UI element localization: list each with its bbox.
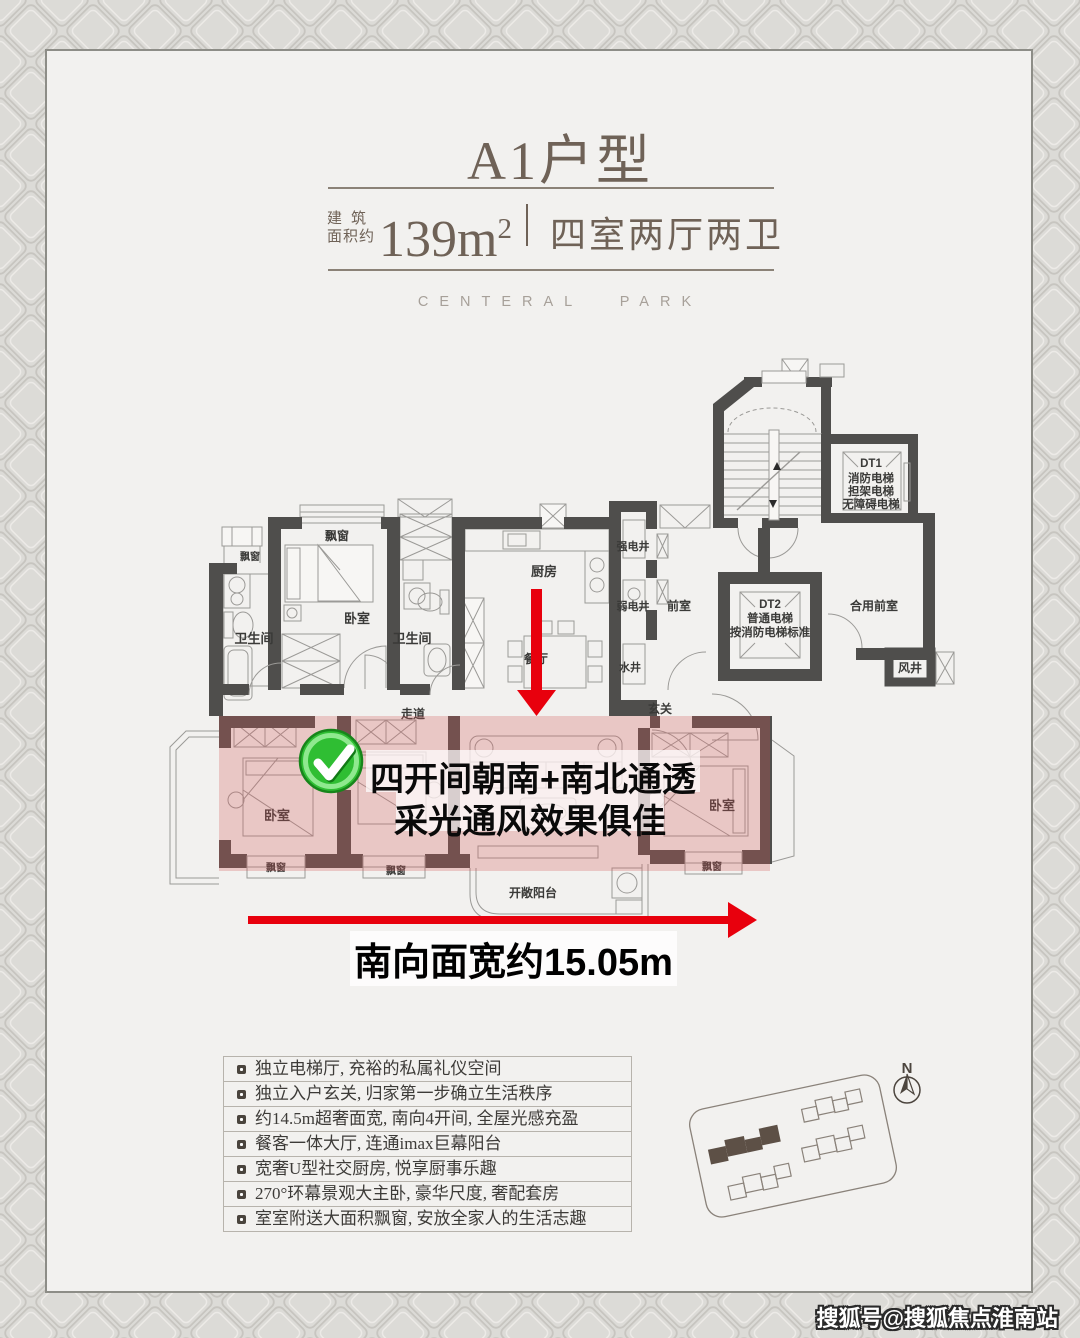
svg-text:消防电梯: 消防电梯 bbox=[848, 471, 894, 485]
svg-text:DT1: DT1 bbox=[860, 458, 882, 470]
svg-text:无障碍电梯: 无障碍电梯 bbox=[841, 497, 900, 511]
svg-text:普通电梯: 普通电梯 bbox=[747, 611, 793, 625]
svg-text:飘窗: 飘窗 bbox=[325, 528, 349, 543]
svg-text:前室: 前室 bbox=[667, 598, 691, 613]
svg-text:飘窗: 飘窗 bbox=[240, 550, 260, 563]
svg-text:卧室: 卧室 bbox=[344, 611, 370, 626]
svg-text:弱电井: 弱电井 bbox=[617, 599, 650, 613]
svg-text:水井: 水井 bbox=[619, 660, 641, 674]
svg-text:担架电梯: 担架电梯 bbox=[848, 484, 894, 498]
svg-text:按消防电梯标准: 按消防电梯标准 bbox=[730, 625, 811, 639]
svg-text:卫生间: 卫生间 bbox=[234, 631, 273, 646]
svg-text:玄关: 玄关 bbox=[648, 701, 672, 716]
svg-text:合用前室: 合用前室 bbox=[850, 598, 898, 613]
svg-text:开敞阳台: 开敞阳台 bbox=[509, 885, 557, 900]
svg-text:强电井: 强电井 bbox=[617, 539, 650, 553]
svg-text:DT2: DT2 bbox=[759, 599, 781, 611]
svg-text:风井: 风井 bbox=[898, 660, 922, 675]
svg-text:卫生间: 卫生间 bbox=[392, 631, 431, 646]
svg-text:厨房: 厨房 bbox=[531, 564, 557, 579]
